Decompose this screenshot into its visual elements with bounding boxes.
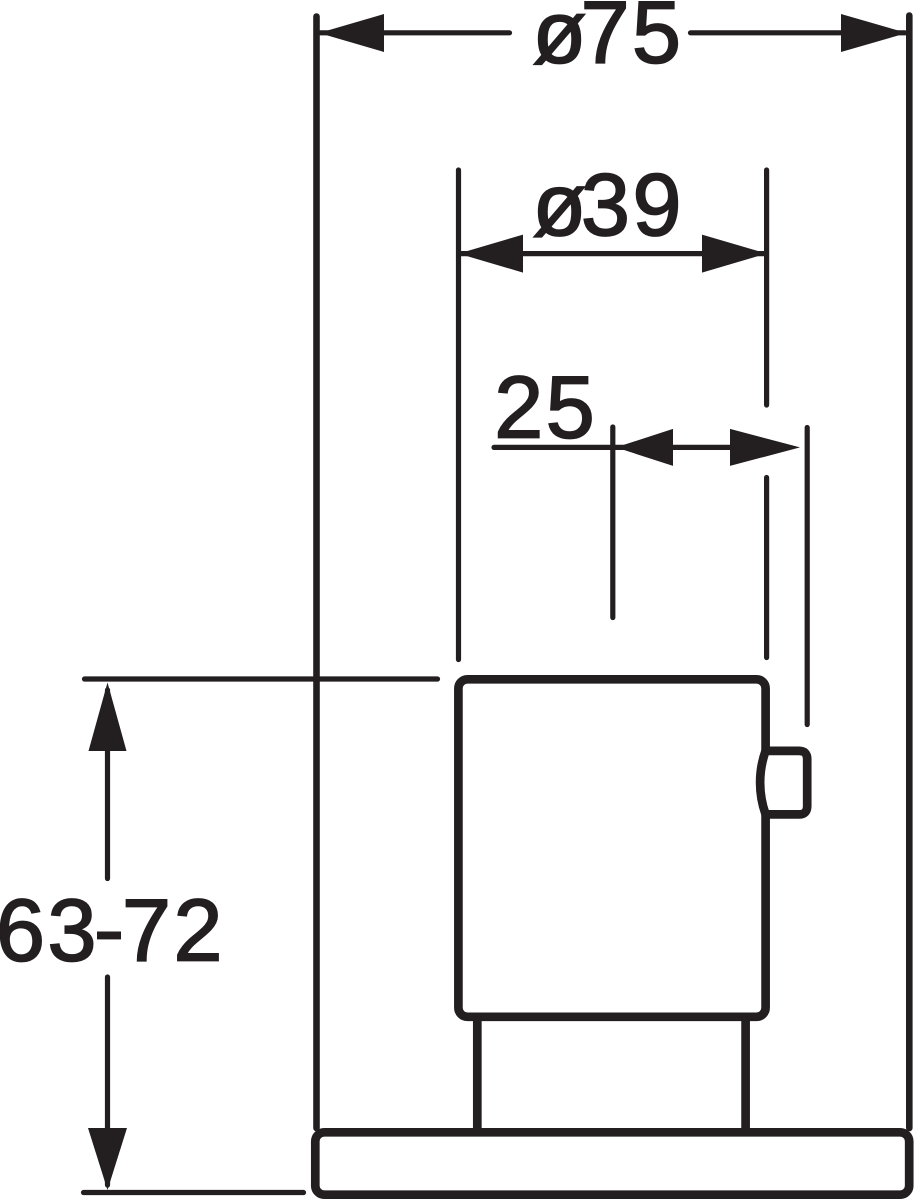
- svg-text:75: 75: [581, 0, 684, 82]
- svg-text:72: 72: [122, 881, 225, 980]
- svg-text:25: 25: [494, 358, 597, 457]
- svg-text:39: 39: [581, 155, 684, 254]
- svg-text:63: 63: [0, 881, 99, 980]
